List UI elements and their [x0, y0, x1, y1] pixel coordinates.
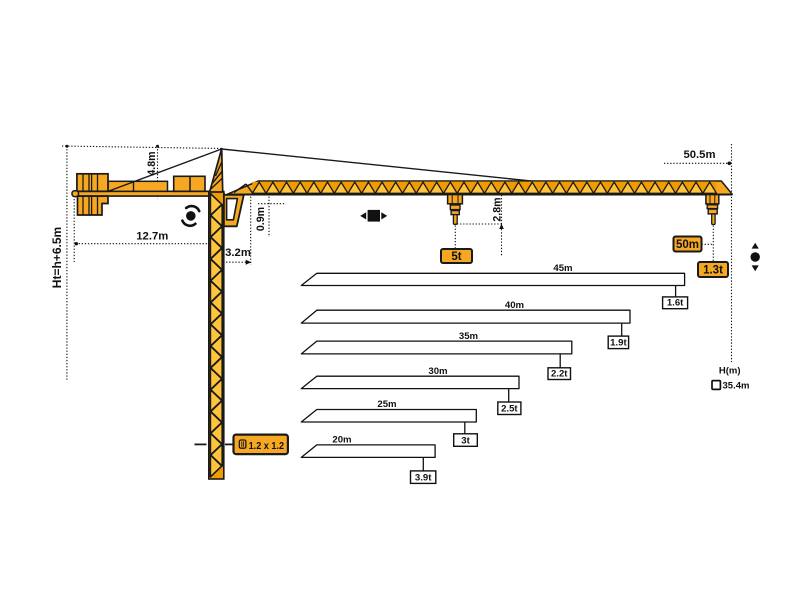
svg-text:0.9m: 0.9m: [255, 207, 267, 231]
svg-text:1.9t: 1.9t: [610, 338, 627, 349]
svg-text:2.2t: 2.2t: [551, 369, 568, 380]
svg-text:25m: 25m: [377, 399, 396, 410]
svg-text:50m: 50m: [676, 239, 699, 251]
svg-text:2.5t: 2.5t: [501, 404, 518, 415]
svg-text:1.3t: 1.3t: [703, 265, 723, 277]
svg-text:4.8m: 4.8m: [146, 151, 158, 175]
svg-text:20m: 20m: [332, 435, 351, 446]
svg-text:5t: 5t: [451, 251, 461, 263]
svg-text:3.2m: 3.2m: [225, 247, 251, 259]
svg-text:1.2 x 1.2: 1.2 x 1.2: [249, 441, 285, 452]
svg-text:30m: 30m: [428, 366, 447, 377]
svg-text:Ht=h+6.5m: Ht=h+6.5m: [50, 227, 64, 288]
svg-text:1.6t: 1.6t: [667, 298, 684, 309]
svg-text:45m: 45m: [553, 263, 572, 274]
svg-text:35m: 35m: [459, 331, 478, 342]
svg-text:12.7m: 12.7m: [136, 230, 168, 242]
svg-text:40m: 40m: [505, 300, 524, 311]
svg-text:50.5m: 50.5m: [683, 149, 715, 161]
svg-text:H(m): H(m): [719, 366, 741, 377]
svg-text:3.9t: 3.9t: [415, 472, 432, 483]
svg-text:2.8m: 2.8m: [492, 197, 504, 221]
svg-text:3t: 3t: [461, 435, 470, 446]
svg-text:35.4m: 35.4m: [723, 380, 750, 391]
